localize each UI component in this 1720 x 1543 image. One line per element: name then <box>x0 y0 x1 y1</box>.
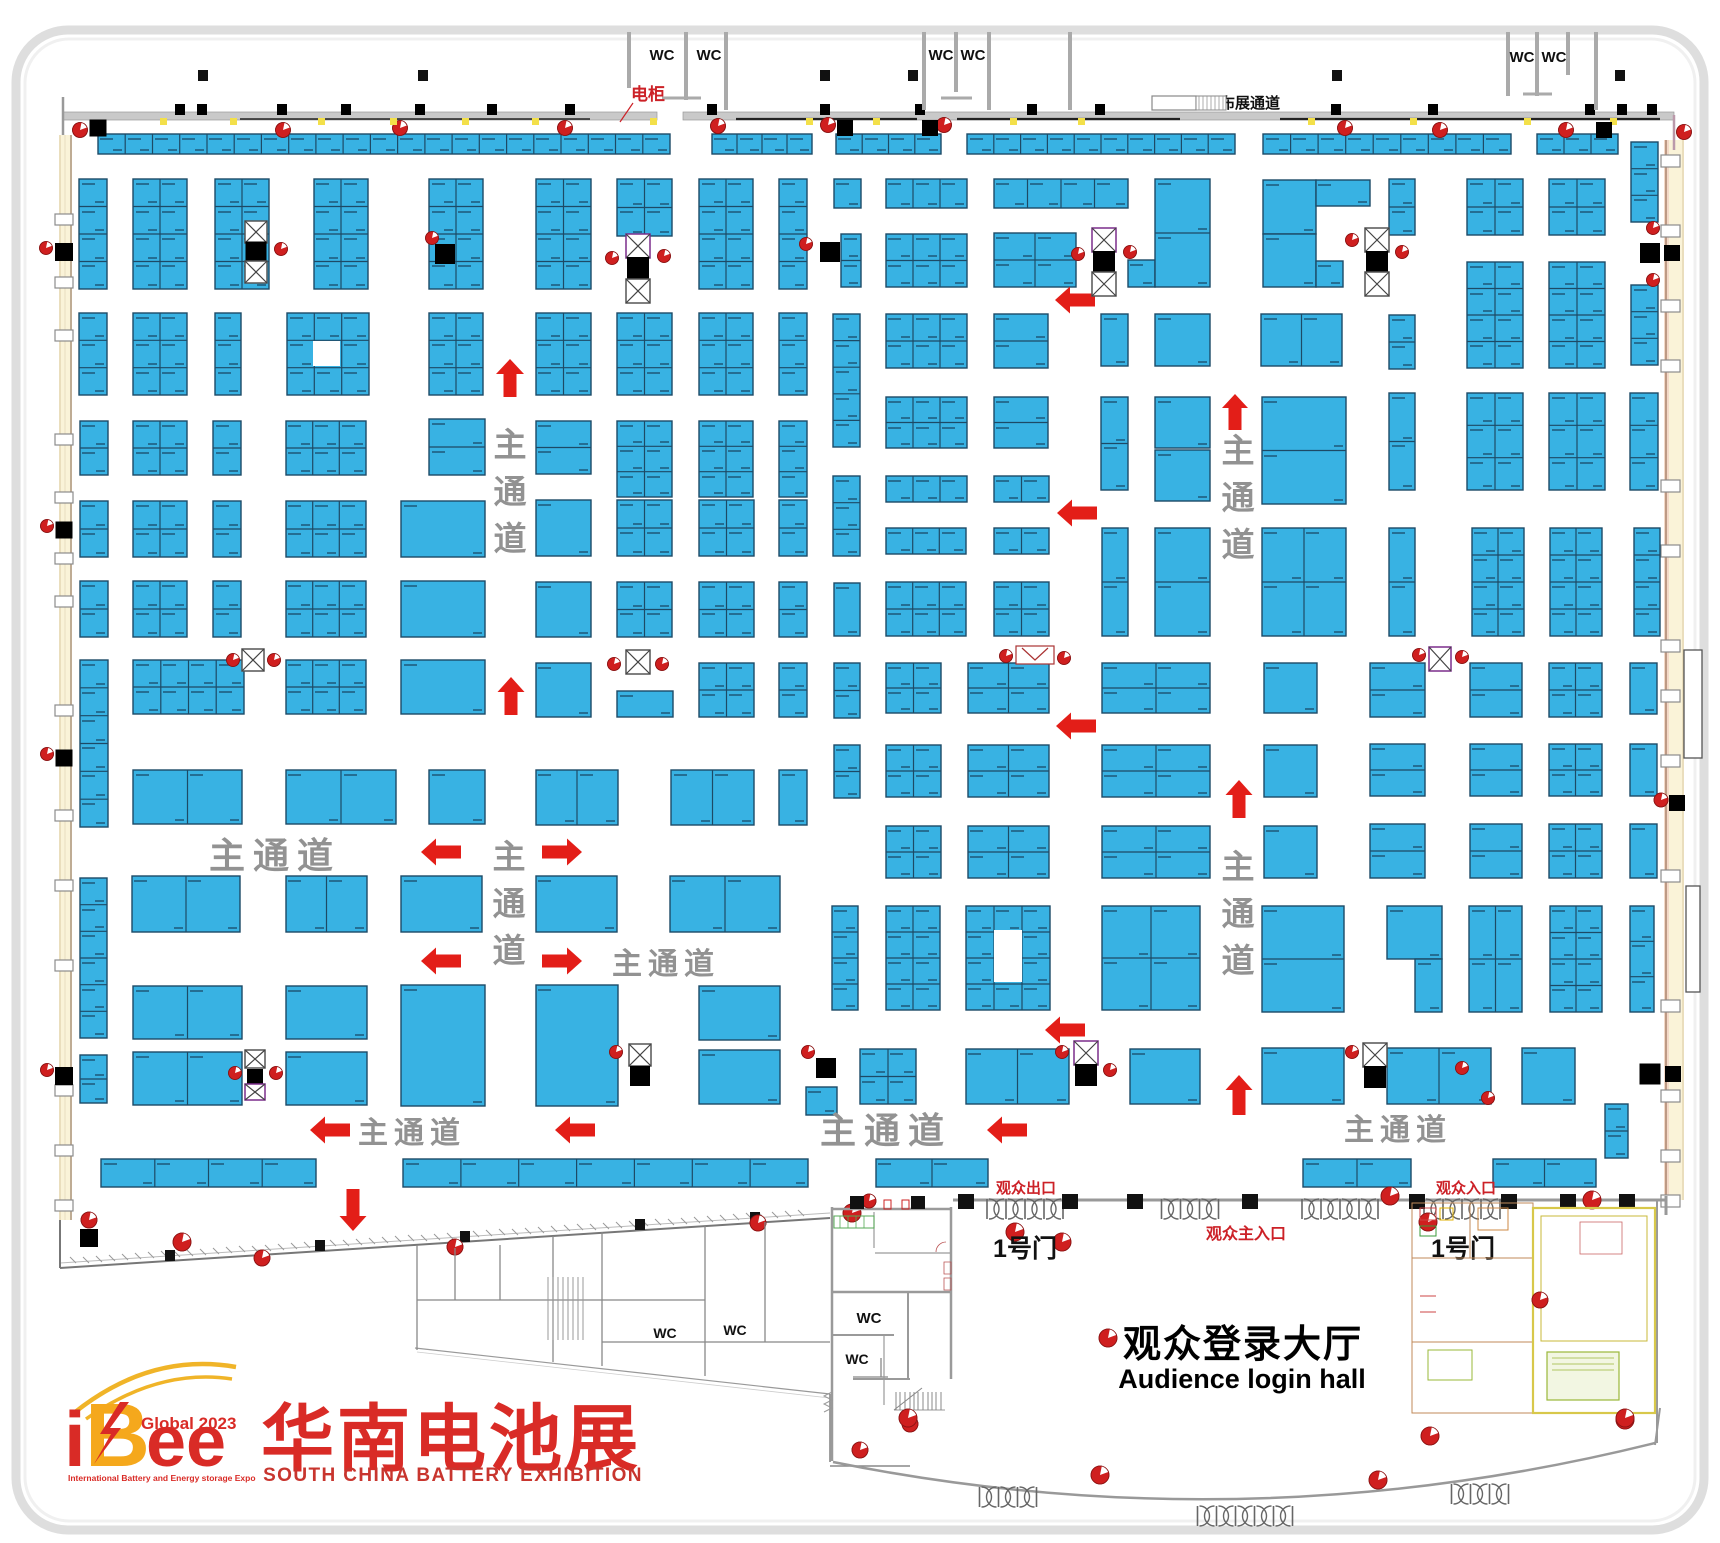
svg-text:i: i <box>64 1395 86 1483</box>
svg-text:主: 主 <box>1222 432 1255 469</box>
svg-text:观众登录大厅: 观众登录大厅 <box>1123 1324 1363 1366</box>
svg-text:通: 通 <box>1222 895 1255 932</box>
svg-text:WC: WC <box>723 1322 746 1338</box>
svg-text:观众出口: 观众出口 <box>996 1179 1056 1197</box>
svg-text:Global 2023: Global 2023 <box>141 1414 236 1433</box>
svg-text:WC: WC <box>845 1351 868 1367</box>
svg-text:道: 道 <box>1222 526 1255 563</box>
svg-text:SOUTH CHINA BATTERY EXHIBITION: SOUTH CHINA BATTERY EXHIBITION <box>263 1465 643 1486</box>
svg-text:B: B <box>85 1386 150 1486</box>
svg-text:1号门: 1号门 <box>1431 1234 1495 1263</box>
svg-text:WC: WC <box>697 47 722 64</box>
svg-text:主通道: 主通道 <box>612 948 720 981</box>
svg-text:1号门: 1号门 <box>993 1234 1057 1263</box>
svg-text:主: 主 <box>493 838 526 875</box>
svg-text:WC: WC <box>653 1325 676 1341</box>
svg-text:电柜: 电柜 <box>631 84 665 104</box>
svg-text:主通道: 主通道 <box>820 1110 952 1151</box>
svg-text:主通道: 主通道 <box>1344 1114 1452 1147</box>
svg-text:道: 道 <box>1222 942 1255 979</box>
svg-text:布展通道: 布展通道 <box>1220 94 1280 112</box>
svg-text:WC: WC <box>857 1310 882 1327</box>
svg-text:Audience login hall: Audience login hall <box>1118 1364 1366 1394</box>
svg-text:WC: WC <box>650 47 675 64</box>
svg-text:主: 主 <box>494 426 527 463</box>
svg-text:主通道: 主通道 <box>358 1117 466 1150</box>
svg-text:WC: WC <box>1542 49 1567 66</box>
svg-text:International Battery and Ener: International Battery and Energy storage… <box>68 1473 256 1483</box>
svg-text:道: 道 <box>494 520 527 557</box>
svg-text:主: 主 <box>1222 848 1255 885</box>
svg-text:通: 通 <box>494 473 527 510</box>
svg-text:观众入口: 观众入口 <box>1436 1179 1496 1197</box>
svg-text:道: 道 <box>493 932 526 969</box>
svg-text:WC: WC <box>929 47 954 64</box>
svg-text:WC: WC <box>961 47 986 64</box>
svg-text:通: 通 <box>1222 479 1255 516</box>
svg-text:通: 通 <box>493 885 526 922</box>
svg-text:WC: WC <box>1510 49 1535 66</box>
svg-text:观众主入口: 观众主入口 <box>1206 1224 1286 1243</box>
svg-text:主通道: 主通道 <box>209 835 341 876</box>
